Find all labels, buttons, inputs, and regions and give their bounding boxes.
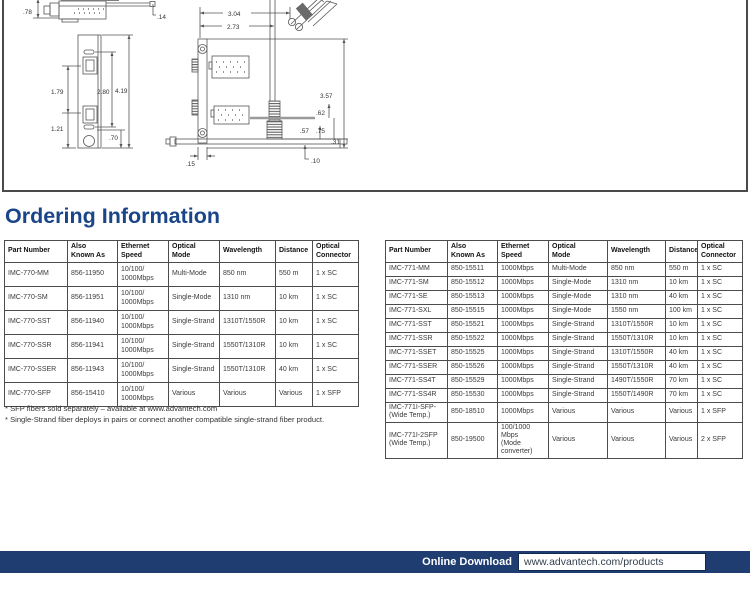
dimension-label: .75 [316,128,325,135]
table-cell: Various [549,422,608,458]
table-row: IMC-770-SSR856-1194110/100/ 1000MbpsSing… [5,335,359,359]
mechanical-drawing: .78.141.791.212.804.19.703.042.733.57.62… [4,0,742,186]
table-row: IMC-771I-SFP- (Wide Temp.)850-185101000M… [386,403,743,423]
table-cell: IMC-771-SM [386,277,448,291]
table-cell: 1310T/1550R [608,347,666,361]
table-cell: 550 m [666,263,698,277]
dimension-label: 3.57 [320,93,333,100]
table-cell: 40 km [666,291,698,305]
dimension-label: .57 [300,128,309,135]
column-header: Optical Connector [698,241,743,263]
table-cell: 1490T/1550R [608,375,666,389]
table-cell: 856-11943 [68,359,118,383]
table-cell: 70 km [666,389,698,403]
table-cell: 850-15513 [448,291,498,305]
table-cell: IMC-770-SST [5,311,68,335]
table-cell: Single-Strand [169,359,220,383]
dimension-label: 4.19 [115,88,128,95]
table-cell: 850-15515 [448,305,498,319]
table-cell: 2 x SFP [698,422,743,458]
table-cell: 1 x SC [698,305,743,319]
table-row: IMC-770-MM856-1195010/100/ 1000MbpsMulti… [5,263,359,287]
dimension-label: .15 [186,161,195,168]
table-cell: 1 x SC [698,347,743,361]
table-cell: 1 x SC [313,359,359,383]
column-header: Optical Connector [313,241,359,263]
table-row: IMC-771-SSET850-155251000MbpsSingle-Stra… [386,347,743,361]
table-cell: 856-11950 [68,263,118,287]
column-header: Also Known As [68,241,118,263]
table-cell: IMC-771-SS4T [386,375,448,389]
footer-url[interactable]: www.advantech.com/products [518,553,706,571]
table-cell: Various [666,403,698,423]
table-cell: 1550 nm [608,305,666,319]
footnotes: * SFP fibers sold separately – available… [5,403,324,425]
column-header: Distance [276,241,313,263]
table-row: IMC-771-MM850-155111000MbpsMulti-Mode850… [386,263,743,277]
table-cell: IMC-770-MM [5,263,68,287]
ordering-table-imc770: Part NumberAlso Known AsEthernet SpeedOp… [4,240,359,407]
table-cell: 850-15529 [448,375,498,389]
dimension-label: 3.04 [228,11,241,18]
table-cell: Single-Strand [549,361,608,375]
table-cell: 10/100/ 1000Mbps [118,335,169,359]
column-header: Optical Mode [549,241,608,263]
table-cell: Single-Strand [549,319,608,333]
datasheet-page: .78.141.791.212.804.19.703.042.733.57.62… [0,0,750,591]
table-cell: 850-15530 [448,389,498,403]
table-cell: 550 m [276,263,313,287]
footnote-single-strand: * Single-Strand fiber deploys in pairs o… [5,414,324,425]
table-cell: IMC-770-SSER [5,359,68,383]
table-cell: 1000Mbps [498,291,549,305]
table-cell: 856-11941 [68,335,118,359]
table-cell: 1000Mbps [498,347,549,361]
ordering-table-imc771: Part NumberAlso Known AsEthernet SpeedOp… [385,240,743,459]
table-cell: 10 km [276,335,313,359]
table-cell: 850 nm [220,263,276,287]
table-row: IMC-771-SSER850-155261000MbpsSingle-Stra… [386,361,743,375]
column-header: Wavelength [608,241,666,263]
table-cell: 10/100/ 1000Mbps [118,359,169,383]
table-cell: Single-Mode [169,287,220,311]
table-cell: IMC-770-SM [5,287,68,311]
table-cell: 1310T/1550R [220,311,276,335]
footer-bar: Online Download www.advantech.com/produc… [0,551,750,573]
iso-view-drawing [288,0,337,31]
table-row: IMC-771I-2SFP (Wide Temp.)850-19500100/1… [386,422,743,458]
table-row: IMC-770-SSER856-1194310/100/ 1000MbpsSin… [5,359,359,383]
table-cell: 1 x SC [698,361,743,375]
dimension-label: .70 [109,135,118,142]
table-row: IMC-770-SST856-1194010/100/ 1000MbpsSing… [5,311,359,335]
table-cell: 1000Mbps [498,319,549,333]
top-view-drawing [33,0,156,22]
column-header: Part Number [5,241,68,263]
table-cell: IMC-771-SXL [386,305,448,319]
table-row: IMC-771-SM850-155121000MbpsSingle-Mode13… [386,277,743,291]
table-row: IMC-771-SS4R850-155301000MbpsSingle-Stra… [386,389,743,403]
table-cell: 40 km [666,347,698,361]
table-cell: 40 km [666,361,698,375]
table-cell: 1310 nm [220,287,276,311]
table-cell: 1 x SFP [698,403,743,423]
table-cell: Single-Strand [169,311,220,335]
table-cell: 1000Mbps [498,305,549,319]
table-cell: 1550T/1490R [608,389,666,403]
table-cell: 1 x SC [313,335,359,359]
table-cell: Various [549,403,608,423]
table-cell: Single-Mode [549,305,608,319]
table-cell: 1000Mbps [498,263,549,277]
table-cell: Various [608,422,666,458]
table-cell: Multi-Mode [169,263,220,287]
table-cell: Single-Strand [549,389,608,403]
table-cell: 1 x SC [313,263,359,287]
table-cell: 1310 nm [608,291,666,305]
table-cell: IMC-771-SS4R [386,389,448,403]
dimension-label: 2.73 [227,24,240,31]
table-cell: IMC-771-SE [386,291,448,305]
dimension-label: 1.79 [51,89,64,96]
dimension-label: .62 [316,110,325,117]
table-cell: 1310T/1550R [608,319,666,333]
table-cell: Single-Mode [549,277,608,291]
table-cell: 1550T/1310R [608,333,666,347]
table-cell: 1000Mbps [498,403,549,423]
table-cell: 850-18510 [448,403,498,423]
table-cell: 1550T/1310R [608,361,666,375]
table-cell: 856-11940 [68,311,118,335]
table-cell: 1 x SC [698,375,743,389]
table-cell: IMC-771-MM [386,263,448,277]
table-cell: 850-19500 [448,422,498,458]
table-cell: 10 km [276,287,313,311]
table-row: IMC-770-SM856-1195110/100/ 1000MbpsSingl… [5,287,359,311]
mechanical-drawing-panel: .78.141.791.212.804.19.703.042.733.57.62… [2,0,748,192]
table-cell: Single-Strand [549,347,608,361]
table-cell: Various [608,403,666,423]
table-cell: 100/1000 Mbps (Mode converter) [498,422,549,458]
column-header: Distance [666,241,698,263]
table-cell: 10 km [666,333,698,347]
table-cell: 10/100/ 1000Mbps [118,311,169,335]
column-header: Ethernet Speed [498,241,549,263]
table-cell: IMC-771I-2SFP (Wide Temp.) [386,422,448,458]
table-cell: 1 x SC [698,389,743,403]
table-cell: 1000Mbps [498,361,549,375]
table-cell: 70 km [666,375,698,389]
table-cell: IMC-771I-SFP- (Wide Temp.) [386,403,448,423]
table-cell: 1550T/1310R [220,335,276,359]
table-cell: IMC-771-SSR [386,333,448,347]
dimension-label: .78 [23,9,32,16]
table-cell: 1000Mbps [498,389,549,403]
table-cell: 850-15525 [448,347,498,361]
table-cell: 850-15521 [448,319,498,333]
column-header: Wavelength [220,241,276,263]
footnote-sfp: * SFP fibers sold separately – available… [5,403,324,414]
dimension-label: .14 [157,14,166,21]
table-cell: 1 x SC [313,311,359,335]
table-cell: Single-Strand [549,375,608,389]
table-cell: IMC-770-SSR [5,335,68,359]
table-cell: 850-15511 [448,263,498,277]
table-cell: 1 x SC [698,319,743,333]
table-row: IMC-771-SE850-155131000MbpsSingle-Mode13… [386,291,743,305]
table-cell: Single-Mode [549,291,608,305]
table-cell: 1 x SC [698,291,743,305]
table-cell: 850-15522 [448,333,498,347]
table-cell: 1310 nm [608,277,666,291]
dimension-label: .31 [331,139,340,146]
table-cell: 10 km [666,277,698,291]
table-cell: 40 km [276,359,313,383]
footer-label: Online Download [422,556,512,568]
table-row: IMC-771-SST850-155211000MbpsSingle-Stran… [386,319,743,333]
table-cell: 1550T/1310R [220,359,276,383]
column-header: Optical Mode [169,241,220,263]
table-cell: 1 x SC [698,263,743,277]
table-cell: 1000Mbps [498,375,549,389]
dimension-label: .10 [311,158,320,165]
table-cell: 850-15512 [448,277,498,291]
table-row: IMC-771-SSR850-155221000MbpsSingle-Stran… [386,333,743,347]
table-cell: 1 x SC [698,277,743,291]
table-cell: 850-15526 [448,361,498,375]
table-cell: 1000Mbps [498,277,549,291]
table-cell: 10/100/ 1000Mbps [118,287,169,311]
table-cell: IMC-771-SST [386,319,448,333]
table-cell: Various [666,422,698,458]
dimension-label: 2.80 [97,89,110,96]
table-row: IMC-771-SXL850-155151000MbpsSingle-Mode1… [386,305,743,319]
table-cell: 10 km [666,319,698,333]
page-title: Ordering Information [5,204,220,229]
dimension-label: 1.21 [51,126,64,133]
table-row: IMC-771-SS4T850-155291000MbpsSingle-Stra… [386,375,743,389]
column-header: Also Known As [448,241,498,263]
table-cell: 1 x SC [698,333,743,347]
table-cell: Multi-Mode [549,263,608,277]
table-cell: 1 x SC [313,287,359,311]
column-header: Part Number [386,241,448,263]
table-cell: 10/100/ 1000Mbps [118,263,169,287]
table-cell: 10 km [276,311,313,335]
side-view-drawing [166,0,348,160]
table-cell: 856-11951 [68,287,118,311]
table-cell: IMC-771-SSER [386,361,448,375]
table-cell: 850 nm [608,263,666,277]
table-cell: 100 km [666,305,698,319]
table-cell: Single-Strand [549,333,608,347]
table-cell: 1000Mbps [498,333,549,347]
table-cell: IMC-771-SSET [386,347,448,361]
column-header: Ethernet Speed [118,241,169,263]
table-cell: Single-Strand [169,335,220,359]
